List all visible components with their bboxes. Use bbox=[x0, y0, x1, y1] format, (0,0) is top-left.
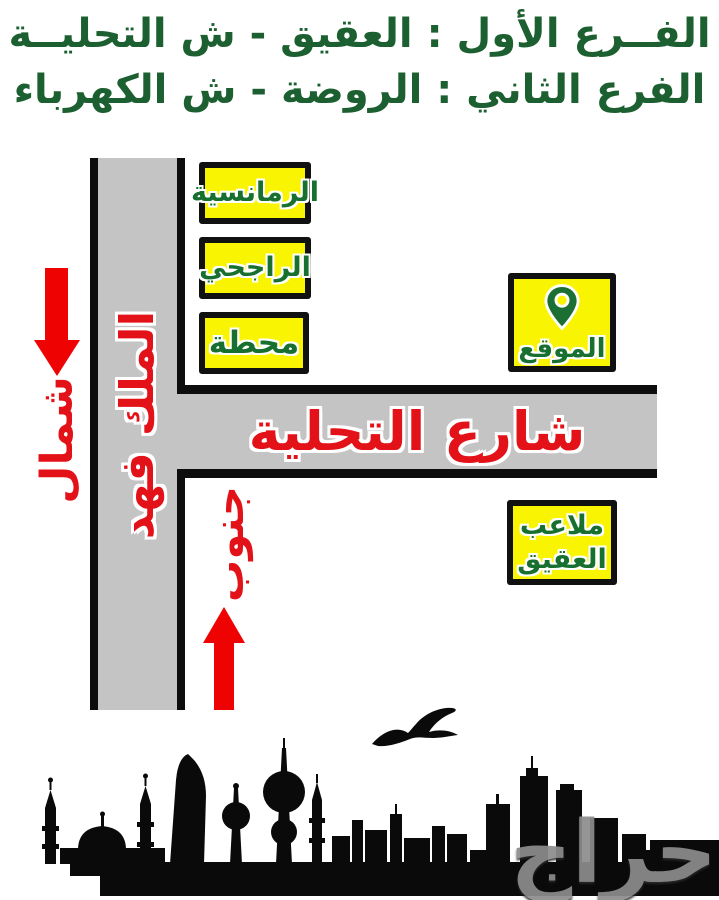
header-branch-1: الفــرع الأول : العقيق - ش التحليــة bbox=[0, 6, 719, 62]
landmark-site-label: الموقع bbox=[518, 332, 605, 366]
south-label: جنوب bbox=[207, 464, 249, 624]
king-fahd-road-label: الملك فهد bbox=[112, 275, 162, 575]
landmark-rajhi: الراجحي bbox=[199, 237, 311, 299]
landmark-romansiah: الرمانسية bbox=[199, 162, 311, 224]
landmark-station: محطة bbox=[199, 312, 309, 374]
landmark-aqiq-fields-label-1: ملاعب bbox=[520, 509, 604, 543]
map-pin-icon bbox=[540, 282, 584, 332]
landmark-site: الموقع bbox=[508, 273, 616, 372]
south-arrow-icon bbox=[203, 607, 245, 710]
bird-icon bbox=[372, 708, 458, 746]
landmark-rajhi-label: الراجحي bbox=[199, 251, 311, 285]
north-arrow-shaft bbox=[45, 268, 68, 340]
south-arrow-shaft bbox=[214, 643, 234, 710]
landmark-station-label: محطة bbox=[209, 326, 300, 360]
tahlia-road-label: شارع التحلية bbox=[177, 392, 657, 470]
haraj-watermark: حراج bbox=[510, 818, 717, 888]
landmark-aqiq-fields-label-2: العقيق bbox=[517, 543, 606, 577]
header: الفــرع الأول : العقيق - ش التحليــة الف… bbox=[0, 6, 719, 118]
landmark-romansiah-label: الرمانسية bbox=[191, 176, 319, 210]
north-label: شمال bbox=[35, 360, 79, 520]
south-arrow-head bbox=[203, 607, 245, 643]
header-branch-2: الفرع الثاني : الروضة - ش الكهرباء bbox=[0, 62, 719, 118]
landmark-aqiq-fields: ملاعب العقيق bbox=[507, 500, 617, 585]
branch-location-map: الفــرع الأول : العقيق - ش التحليــة الف… bbox=[0, 0, 719, 900]
